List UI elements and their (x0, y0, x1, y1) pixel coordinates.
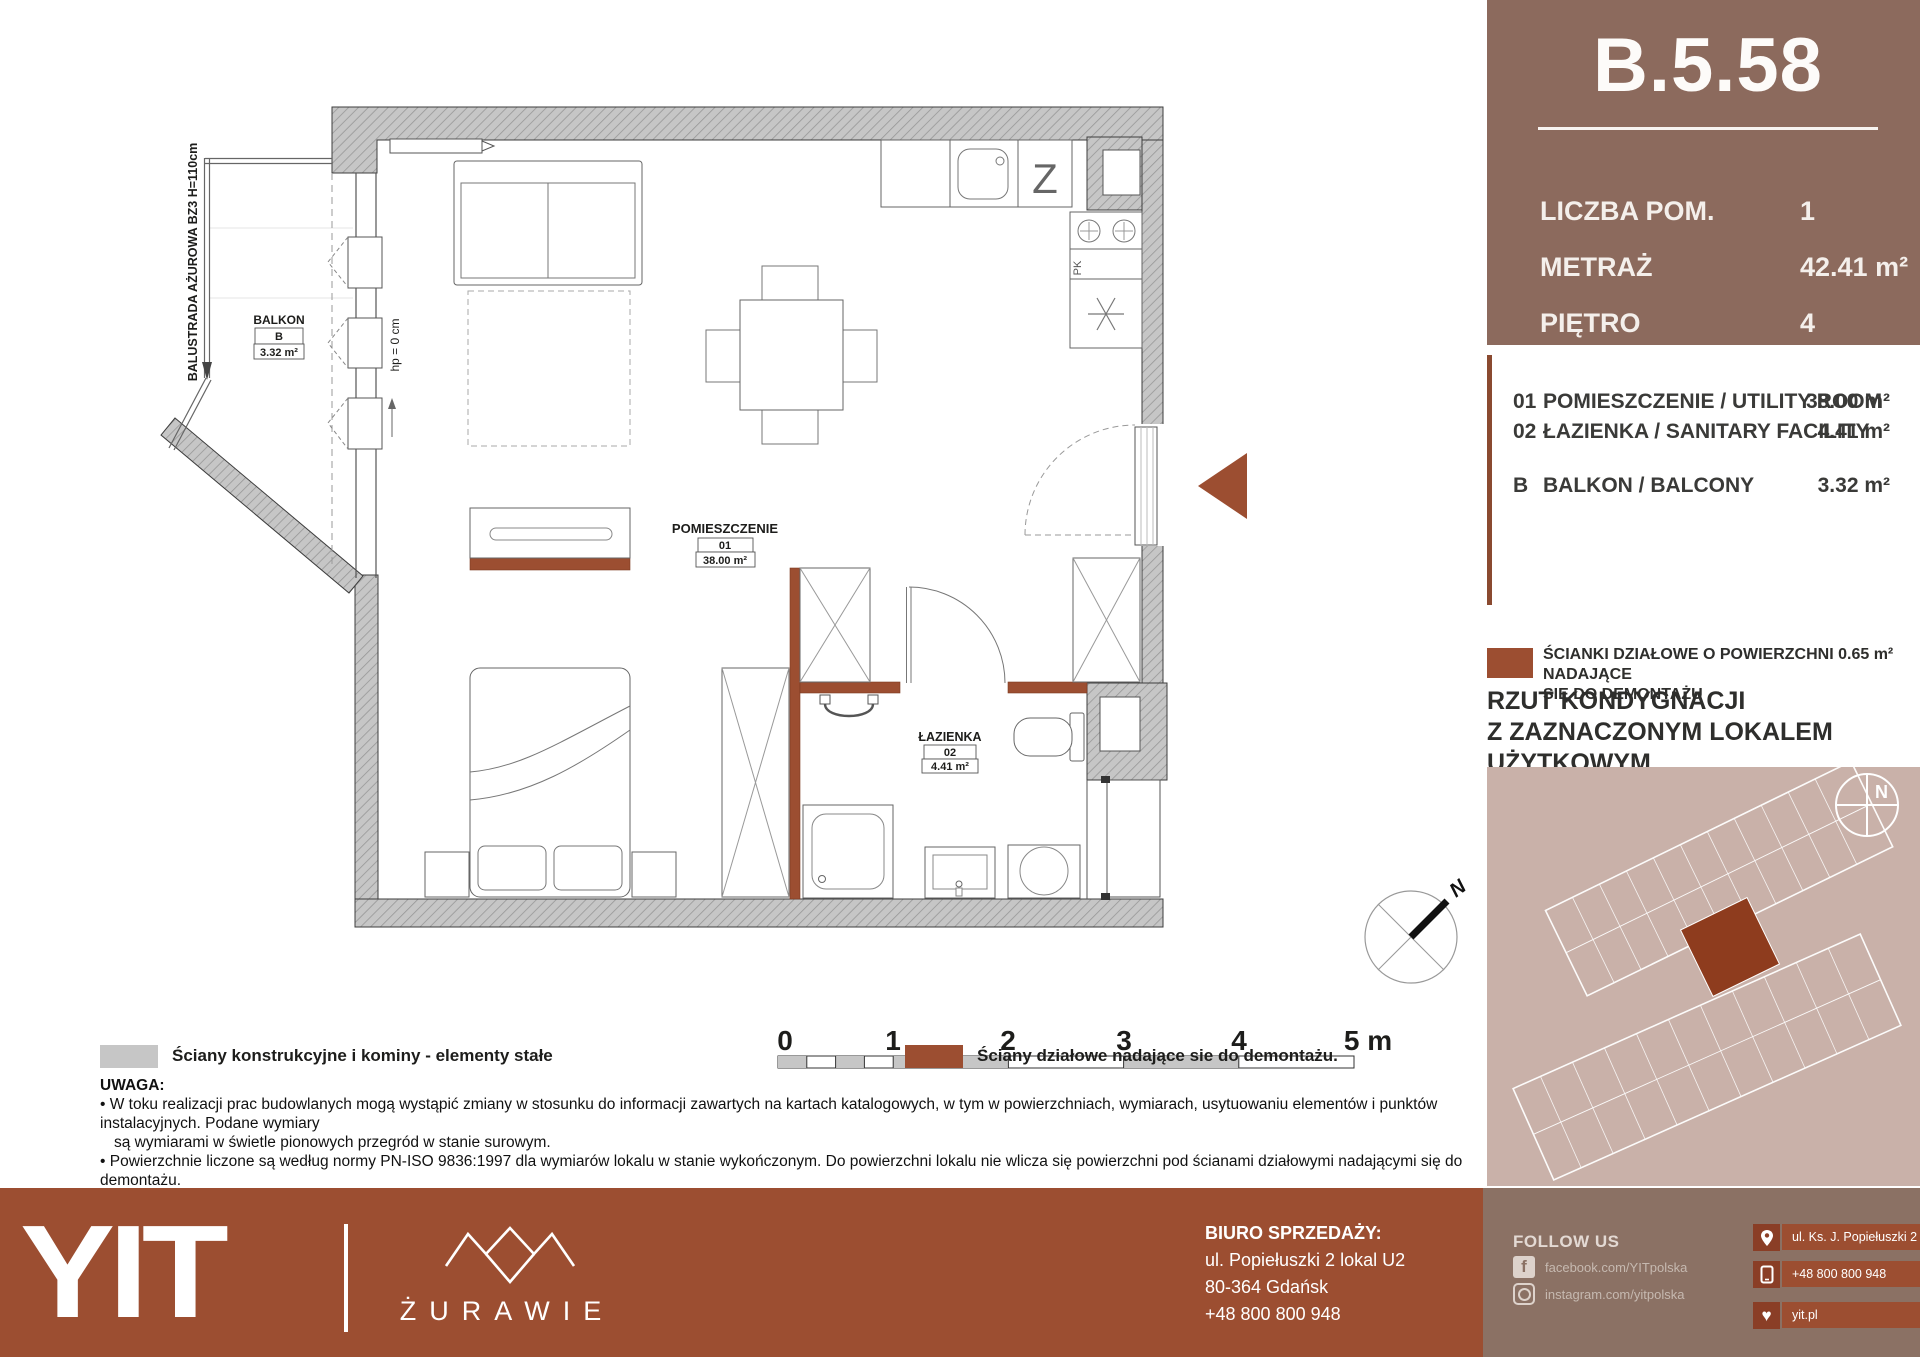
legend-partition-swatch (905, 1045, 963, 1068)
dresser (470, 508, 630, 558)
floor-value: 4 (1800, 308, 1815, 339)
yit-logo: YIT (20, 1206, 222, 1338)
wardrobe-hall-right (1073, 558, 1140, 682)
plan-compass: N (1365, 875, 1471, 983)
svg-text:01: 01 (719, 540, 731, 552)
unit-id: B.5.58 (1538, 22, 1878, 109)
rooms-count-value: 1 (1800, 196, 1815, 227)
svg-text:1: 1 (885, 1025, 901, 1056)
balustrade-label: BALUSTRADA AŻUROWA BZ3 H=110cm (185, 143, 200, 382)
room-row-name: BALKON / BALCONY (1543, 474, 1754, 498)
sales-office-address: ul. Popiełuszki 2 lokal U2 (1205, 1247, 1405, 1274)
dining-table-set (706, 266, 877, 444)
svg-text:5 m: 5 m (1344, 1025, 1392, 1056)
room-list-rule (1487, 355, 1492, 605)
structural-walls (161, 107, 1167, 927)
wardrobe-hall-left (800, 568, 870, 682)
bed (425, 668, 676, 897)
wardrobe-tall (722, 668, 789, 897)
sales-office-title: BIURO SPRZEDAŻY: (1205, 1220, 1405, 1247)
minimap-compass (1836, 774, 1898, 836)
wall-niche-kitchen (1103, 150, 1140, 195)
apartment-card-page: BALUSTRADA AŻUROWA BZ3 H=110cm BALKON B … (0, 0, 1920, 1357)
area-value: 42.41 m² (1800, 252, 1908, 283)
legend-structural-text: Ściany konstrukcyjne i kominy - elementy… (172, 1046, 553, 1066)
instagram-link[interactable]: instagram.com/yitpolska (1545, 1287, 1684, 1302)
floor-note: RZUT KONDYGNACJI Z ZAZNACZONYM LOKALEM U… (1487, 686, 1920, 779)
minimap-drawing: N (1487, 767, 1920, 1186)
towel-rail (820, 695, 878, 716)
balcony-title: BALKON (253, 313, 304, 327)
facebook-link[interactable]: facebook.com/YITpolska (1545, 1260, 1687, 1275)
floor-label: PIĘTRO (1540, 308, 1641, 339)
bathroom-sink (925, 847, 995, 898)
room-row-area: 3.32 m² (1818, 474, 1890, 498)
svg-text:0: 0 (777, 1025, 793, 1056)
kitchen-column (1070, 212, 1142, 348)
follow-us-label: FOLLOW US (1513, 1232, 1619, 1252)
sofa (454, 161, 642, 285)
shower (803, 805, 893, 898)
building-minimap: N (1487, 767, 1920, 1186)
zurawie-logo-icon (438, 1226, 584, 1286)
notes-line: • Powierzchnie liczone są według normy P… (100, 1152, 1520, 1190)
partition-legend-swatch (1487, 648, 1533, 678)
phone-icon (1753, 1261, 1780, 1288)
instagram-icon[interactable] (1513, 1283, 1535, 1305)
hp-label: hp = 0 cm (388, 318, 402, 371)
location-pin-icon (1753, 1224, 1780, 1251)
room-row-no: 01 (1513, 390, 1536, 414)
balcony-code: B (275, 331, 283, 343)
leader-arrow (202, 362, 212, 380)
header-rule (1538, 127, 1878, 130)
room-row-no: 02 (1513, 420, 1536, 444)
toilet (1014, 713, 1084, 761)
contact-address-bar[interactable]: ul. Ks. J. Popiełuszki 2 (1782, 1224, 1920, 1250)
notes-line: • W toku realizacji prac budowlanych mog… (100, 1095, 1520, 1133)
window-wall: hp = 0 cm (328, 173, 402, 578)
room-row-area: 38.00 m² (1806, 390, 1890, 414)
svg-text:02: 02 (944, 747, 956, 759)
dishwasher-z-label: Z (1032, 155, 1058, 202)
footer-divider (344, 1224, 348, 1332)
contact-web-bar[interactable]: yit.pl (1782, 1302, 1920, 1328)
sales-office-phone: +48 800 800 948 (1205, 1301, 1405, 1328)
highlighted-unit (1681, 898, 1780, 997)
bathroom-door (907, 587, 1006, 683)
room-label-main: POMIESZCZENIE 01 38.00 m² (672, 521, 779, 567)
room-row-area: 4.41 m² (1818, 420, 1890, 444)
shaft-box (1100, 697, 1140, 751)
balcony-area: 3.32 m² (260, 347, 298, 359)
notes-title: UWAGA: (100, 1076, 1520, 1095)
sales-office-block: BIURO SPRZEDAŻY: ul. Popiełuszki 2 lokal… (1205, 1220, 1405, 1328)
rug-dashed (468, 291, 630, 446)
area-label: METRAŻ (1540, 252, 1652, 283)
legend-structural-swatch (100, 1045, 158, 1068)
kitchen-pk-label: PK (1072, 260, 1084, 275)
radiator (390, 139, 494, 153)
minimap-compass-n: N (1875, 782, 1888, 802)
heart-icon: ♥ (1753, 1302, 1780, 1329)
svg-text:ŁAZIENKA: ŁAZIENKA (918, 730, 981, 744)
facebook-icon[interactable]: f (1513, 1256, 1535, 1278)
niche-door (1101, 776, 1160, 900)
notes-line: są wymiarami w świetle pionowych przegró… (100, 1133, 1520, 1152)
legend-partition-text: Ściany działowe nadające sie do demontaż… (977, 1046, 1338, 1066)
sales-office-city: 80-364 Gdańsk (1205, 1274, 1405, 1301)
washing-machine (1008, 845, 1080, 898)
rooms-count-label: LICZBA POM. (1540, 196, 1715, 227)
svg-text:POMIESZCZENIE: POMIESZCZENIE (672, 521, 779, 536)
contact-phone-bar[interactable]: +48 800 800 948 (1782, 1261, 1920, 1287)
room-row-no: B (1513, 474, 1528, 498)
room-label-bath: ŁAZIENKA 02 4.41 m² (918, 730, 981, 773)
entrance-door (1025, 424, 1165, 546)
svg-text:4.41 m²: 4.41 m² (931, 761, 969, 773)
entrance-arrow (1198, 453, 1247, 519)
plan-compass-n: N (1446, 875, 1471, 902)
zurawie-logo-text: ŻURAWIE (372, 1296, 642, 1327)
svg-text:38.00 m²: 38.00 m² (703, 555, 747, 567)
